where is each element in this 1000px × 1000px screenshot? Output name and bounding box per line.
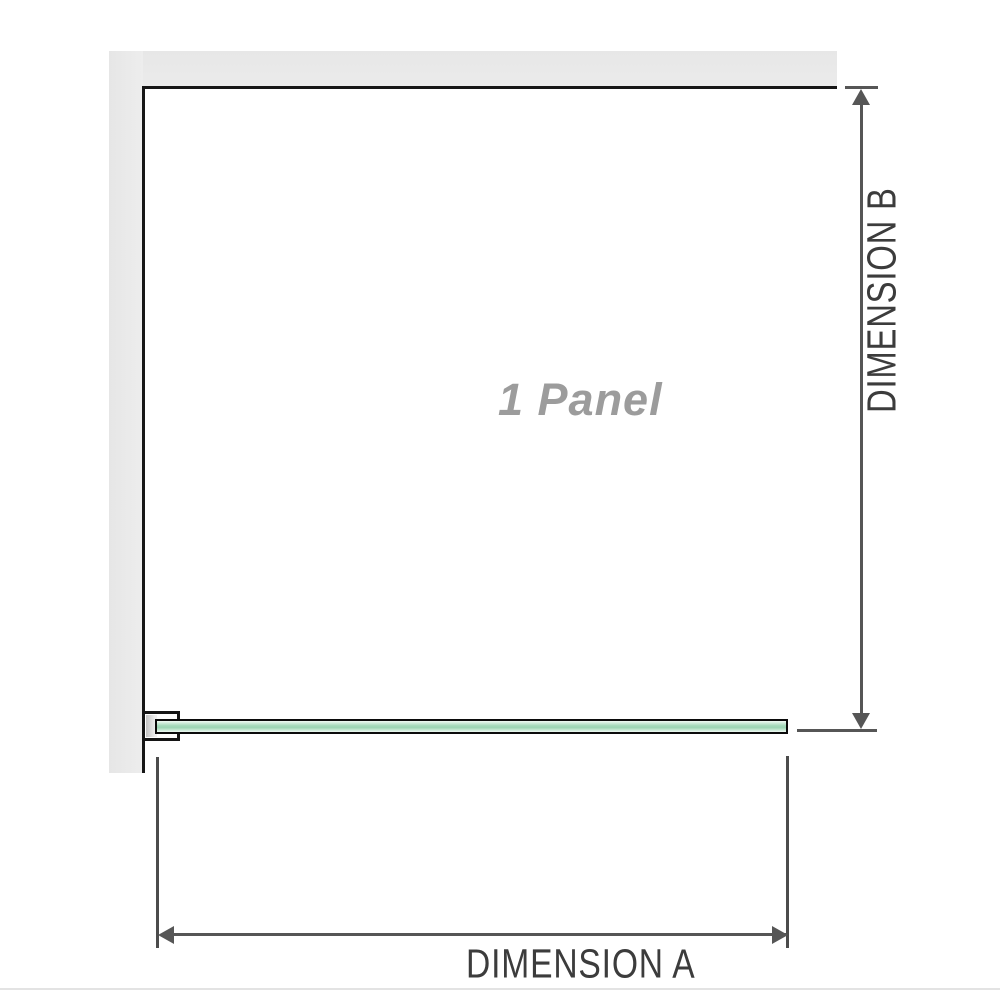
- arrow-up-icon: [852, 89, 870, 105]
- panel-outline-top: [142, 86, 837, 89]
- arrow-left-icon: [158, 926, 174, 944]
- wall-left: [109, 51, 143, 773]
- glass-panel: [155, 719, 788, 734]
- dimension-a-extension-right: [786, 756, 789, 948]
- dimension-a-extension-left: [156, 757, 159, 948]
- arrow-down-icon: [852, 713, 870, 729]
- arrow-right-icon: [772, 926, 788, 944]
- dimension-b-tick-bottom: [797, 729, 877, 732]
- dimension-a-line: [162, 933, 786, 936]
- panel-outline-left: [142, 86, 145, 773]
- bottom-rule: [0, 988, 1000, 990]
- panel-dimension-diagram: DIMENSION B DIMENSION A 1 Panel: [0, 0, 1000, 1000]
- wall-top: [109, 51, 837, 87]
